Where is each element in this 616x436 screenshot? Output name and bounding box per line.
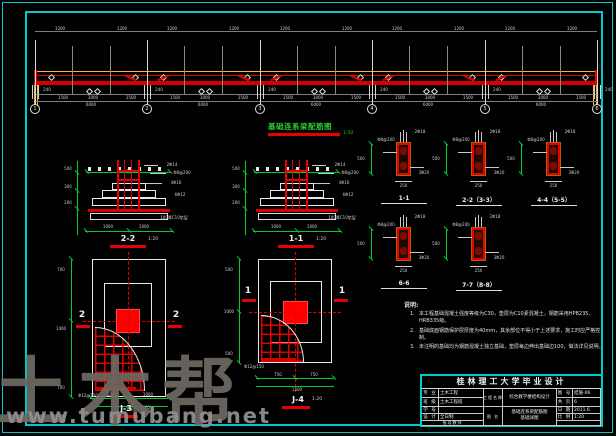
leader-line [403,130,404,142]
side-dim: 200 [230,200,242,205]
side-dim: 200 [62,200,74,205]
leader-line [406,132,407,142]
field-label: 专 业 [422,389,439,398]
section-label: 1-1 [276,234,316,243]
section-scale: 1:20 [148,237,158,242]
side-dim: 1000 [222,309,236,314]
leader-line [475,217,476,227]
intermediate-line [409,46,410,94]
height-dim: 500 [353,241,369,246]
axis-bubble: 6 [592,104,602,114]
leader-line [144,165,158,166]
rebar-zone [400,232,407,240]
top-dim: 1200 [332,26,362,31]
project-name: 综合教学楼结构设计 [503,389,557,407]
bottom-rebar-callout: 3Φ20 [413,255,435,260]
column-bar [299,160,300,210]
mid-dim: 1500 [569,95,593,100]
axis-bubble: 2 [142,104,152,114]
mid-dim: 1500 [344,95,368,100]
top-dim: 1200 [557,26,587,31]
column-stirrup [119,170,138,172]
field-value: 结施-06 [573,389,601,398]
beam-title-text: 基础连系梁配筋图 [268,121,340,132]
beam-section-label: 4-4（5-5） [531,195,577,206]
leader-line [410,252,424,253]
side-dim: 700 [54,267,68,272]
intermediate-line [222,46,223,94]
intermediate-line [447,46,448,94]
note-item: 1.本工程基础混凝土强度等级为C30，垫层为C10素混凝土，钢筋采用HPB235… [410,311,609,326]
top-rebar-callout: 2Φ18 [559,129,581,134]
dim-line [35,31,597,32]
intermediate-line [184,46,185,94]
stirrup-callout: Φ8@200 [448,137,474,142]
section-label: 2-2 [108,234,148,243]
bottom-dim: 750 [264,372,292,377]
mid-dim: 1500 [119,95,143,100]
dim-line-white [470,181,487,182]
column-line [594,85,595,99]
stirrup-callout: Φ8@200 [523,137,549,142]
stirrup-callout: Φ8@200 [373,222,399,227]
title-block: 桂林理工大学毕业设计 专 业 土木工程 工程名称 综合教学楼结构设计 图 号 结… [420,374,603,427]
leader-line [383,237,397,238]
leader-line [458,152,472,153]
beam-flange-line [35,71,597,72]
project-label: 工程名称 [484,389,503,407]
section-cut-number: 1 [242,286,254,296]
notes-list: 1.本工程基础混凝土强度等级为C30，垫层为C10素混凝土，钢筋采用HPB235… [404,311,609,351]
section-cut-number: 2 [170,310,182,320]
column-line [257,85,258,99]
centerline-vertical [295,252,296,392]
support-dim: 240 [601,87,616,92]
blinding-callout: 100厚C10垫层 [320,215,364,221]
section-cut-tick [168,325,182,328]
rebar-edge-bar [262,358,296,361]
note-text: 基础底面钢筋保护层厚度为40mm，其余部位不得小于上述要求，施工时应严格控制。 [419,328,609,343]
dim-line-white [395,181,412,182]
rebar-callout: 2Φ14 [159,162,185,167]
leader-line [406,217,407,227]
width-dim: 250 [395,268,412,273]
mid-dim: 3000 [531,95,555,100]
dim-line-green [371,144,372,174]
leader-line [312,165,326,166]
axis-bubble: 5 [480,104,490,114]
support-dim: 240 [151,87,167,92]
column-bar [292,160,293,210]
bottom-rebar-callout: 3Φ20 [563,170,585,175]
field-label: 设 计 [422,414,439,421]
dim-line-green [371,229,372,259]
column-outline [285,160,308,210]
side-dim: 300 [62,184,74,189]
dim-line-white [545,181,562,182]
field-label: 比 例 [557,414,573,421]
leader-line [485,167,499,168]
mid-dim: 3000 [306,95,330,100]
notes-block: 说明: 1.本工程基础混凝土强度等级为C30，垫层为C10素混凝土，钢筋采用HP… [404,300,609,353]
rebar-zone [475,232,482,240]
top-rebar-callout: 2Φ18 [484,129,506,134]
drawing-name: 基础连系梁配筋图 基础详图 [503,407,557,426]
leader-line [478,130,479,142]
stirrup-callout: Φ8@200 [373,137,399,142]
watermark-url: www.tumubang.net [6,404,271,428]
bottom-dim: 1000 [298,224,326,229]
tutor-label: 指导教师 [422,421,484,426]
axis-bubble: 1 [30,104,40,114]
bottom-dim: 1000 [130,224,158,229]
rebar-callout: 2Φ14 [327,162,353,167]
leader-line [383,152,397,153]
dim-line-white [395,266,412,267]
grid-line [35,40,36,102]
height-dim: 500 [503,156,519,161]
mid-dim: 1500 [163,95,187,100]
title-underline [268,133,340,136]
section-cut-number: 2 [76,310,88,320]
dim-line-green [446,144,447,174]
dim-line-white [470,266,487,267]
support-dim: 240 [489,87,505,92]
bottom-rebar-callout: 3Φ20 [488,255,510,260]
centerline-horizontal [83,321,175,322]
column-stirrup [287,179,306,181]
width-dim: 250 [545,183,562,188]
field-value: 土木工程 [439,389,484,398]
note-item: 3.未注明的基础均为钢筋混凝土独立基础，垫层每边伸出基础边100，做法详见说明。 [410,344,609,351]
rebar-zone [400,247,407,255]
note-number: 3. [410,344,419,351]
top-rebar-callout: 2Φ18 [484,214,506,219]
width-dim: 250 [470,183,487,188]
grid-line [147,40,148,102]
note-text: 未注明的基础均为钢筋混凝土独立基础，垫层每边伸出基础边100，做法详见说明。 [419,344,604,351]
rebar-zone [400,147,407,155]
top-dim: 1200 [270,26,300,31]
leader-line [400,217,401,227]
top-dim: 1200 [219,26,249,31]
field-label: 学 号 [422,407,439,414]
dim-line-green [446,229,447,259]
field-value [439,407,484,414]
top-dim: 1200 [495,26,525,31]
section-cut-tick [76,325,90,328]
rebar-callout: 6Φ12 [335,192,361,197]
beam-title-scale: 1:50 [343,131,353,136]
field-label: 共 页 [557,398,573,407]
section-cut-number: 1 [336,286,348,296]
label-underline [278,245,314,248]
grid-line [372,40,373,102]
support-dim: 240 [264,87,280,92]
centerline-horizontal [249,312,341,313]
column-line [32,85,33,99]
support-dim: 240 [39,87,55,92]
side-dim: 500 [230,166,242,171]
field-value: 土木工程班 [439,398,484,407]
dim-line-green [521,144,522,174]
leader-line [481,132,482,142]
bottom-dim: 750 [300,372,328,377]
grid-line [485,40,486,102]
bottom-rebar-callout: 3Φ20 [488,170,510,175]
cad-canvas: 1240120012001500300015006000224012001200… [0,0,616,436]
mid-dim: 1500 [501,95,525,100]
drawing-name-label: 图 名 [484,407,503,426]
rebar-zone [475,162,482,170]
field-value: 全日制 [439,414,484,421]
rebar-callout: 6Φ12 [167,192,193,197]
leader-line [485,252,499,253]
intermediate-line [72,46,73,94]
bottom-rebar-callout: 3Φ20 [413,170,435,175]
label-underline [282,406,310,409]
leader-line [475,132,476,142]
column-line [369,85,370,99]
side-dim: 500 [62,166,74,171]
leader-line [553,130,554,142]
beam-top-line [35,75,597,76]
intermediate-line [110,46,111,94]
field-label: 图 号 [557,389,573,398]
note-number: 1. [410,311,419,326]
rebar-zone [550,162,557,170]
column-outline [117,160,140,210]
column-bar [131,160,132,210]
plan-label: J-4 [284,395,312,404]
column-bar [124,160,125,210]
leader-line [410,167,424,168]
rebar-callout: Φ8@200 [335,170,365,175]
column-line [144,85,145,99]
beam-section-label: 7-7（8-8） [456,280,502,291]
beam-section-label: 6-6 [381,280,427,289]
leader-line [146,183,162,184]
top-dim: 1200 [45,26,75,31]
plan-scale: 1:20 [312,397,322,402]
top-rebar-callout: 2Φ18 [409,129,431,134]
section-cut-tick [334,299,348,302]
rebar-callout: Φ8@200 [167,170,197,175]
mid-dim: 1500 [51,95,75,100]
leader-line [314,183,330,184]
intermediate-line [560,46,561,94]
column-stirrup [119,179,138,181]
rebar-callout: 4Φ16 [163,180,189,185]
side-dim: 300 [230,184,242,189]
grid-line [597,40,598,102]
leader-line [400,132,401,142]
side-dim: 500 [222,267,236,272]
mid-dim: 1500 [388,95,412,100]
drawing-title-line2: 基础详图 [521,416,539,422]
beam-section-label: 1-1 [381,195,427,204]
mid-dim: 1500 [231,95,255,100]
column-stirrup [287,170,306,172]
leader-line [150,173,166,174]
leader-line [403,215,404,227]
top-dim: 1200 [382,26,412,31]
span-dim: 6000 [79,102,103,107]
rebar-zone [475,147,482,155]
rebar-callout: 4Φ16 [331,180,357,185]
top-dim: 1200 [107,26,137,31]
top-dim: 1200 [157,26,187,31]
bottom-dim: 1000 [94,224,122,229]
height-dim: 500 [428,241,444,246]
grid-line [260,40,261,102]
stirrup-callout: Φ8@200 [448,222,474,227]
rebar-zone [550,147,557,155]
span-dim: 6000 [529,102,553,107]
school-title: 桂林理工大学毕业设计 [422,376,601,389]
field-label: 日 期 [557,407,573,414]
field-value: 2011.6 [573,407,601,414]
section-scale: 1:20 [316,237,326,242]
section-cut-tick [242,299,256,302]
notes-heading: 说明: [404,300,609,309]
leader-line [560,167,574,168]
leader-line [556,132,557,142]
axis-bubble: 3 [255,104,265,114]
intermediate-line [297,46,298,94]
total-dim: 1500 [282,387,312,392]
field-value: 6 [573,398,601,407]
title-block-grid: 专 业 土木工程 工程名称 综合教学楼结构设计 图 号 结施-06 班 级 土木… [422,389,601,426]
mid-dim: 3000 [193,95,217,100]
column-line [482,85,483,99]
span-dim: 6000 [304,102,328,107]
note-item: 2.基础底面钢筋保护层厚度为40mm，其余部位不得小于上述要求，施工时应严格控制… [410,328,609,343]
support-dim: 240 [376,87,392,92]
span-dim: 6000 [416,102,440,107]
side-dim: 1400 [54,326,68,331]
height-dim: 500 [353,156,369,161]
leader-line [478,215,479,227]
label-underline [110,245,146,248]
width-dim: 250 [470,268,487,273]
leader-line [533,152,547,153]
span-dim: 6000 [191,102,215,107]
empty-cell [557,421,601,426]
field-label: 班 级 [422,398,439,407]
rebar-zone [400,162,407,170]
height-dim: 500 [428,156,444,161]
intermediate-line [335,46,336,94]
leader-line [550,132,551,142]
leader-line [458,237,472,238]
leader-line [318,173,334,174]
note-text: 本工程基础混凝土强度等级为C30，垫层为C10素混凝土，钢筋采用HPB235、H… [419,311,609,326]
rebar-zone [475,247,482,255]
top-dim: 1200 [444,26,474,31]
mid-dim: 3000 [81,95,105,100]
top-rebar-callout: 2Φ18 [409,214,431,219]
bottom-dim: 1000 [262,224,290,229]
note-number: 2. [410,328,419,343]
beam-title: 基础连系梁配筋图 1:50 [268,121,340,136]
leader-line [481,217,482,227]
mid-dim: 3000 [418,95,442,100]
beam-bottom-band [35,81,597,85]
blinding-callout: 100厚C10垫层 [152,215,196,221]
beam-section-label: 2-2（3-3） [456,195,502,206]
mid-dim: 1500 [456,95,480,100]
width-dim: 250 [395,183,412,188]
field-value: 1:20 [573,414,601,421]
intermediate-line [522,46,523,94]
axis-bubble: 4 [367,104,377,114]
mid-dim: 1500 [276,95,300,100]
